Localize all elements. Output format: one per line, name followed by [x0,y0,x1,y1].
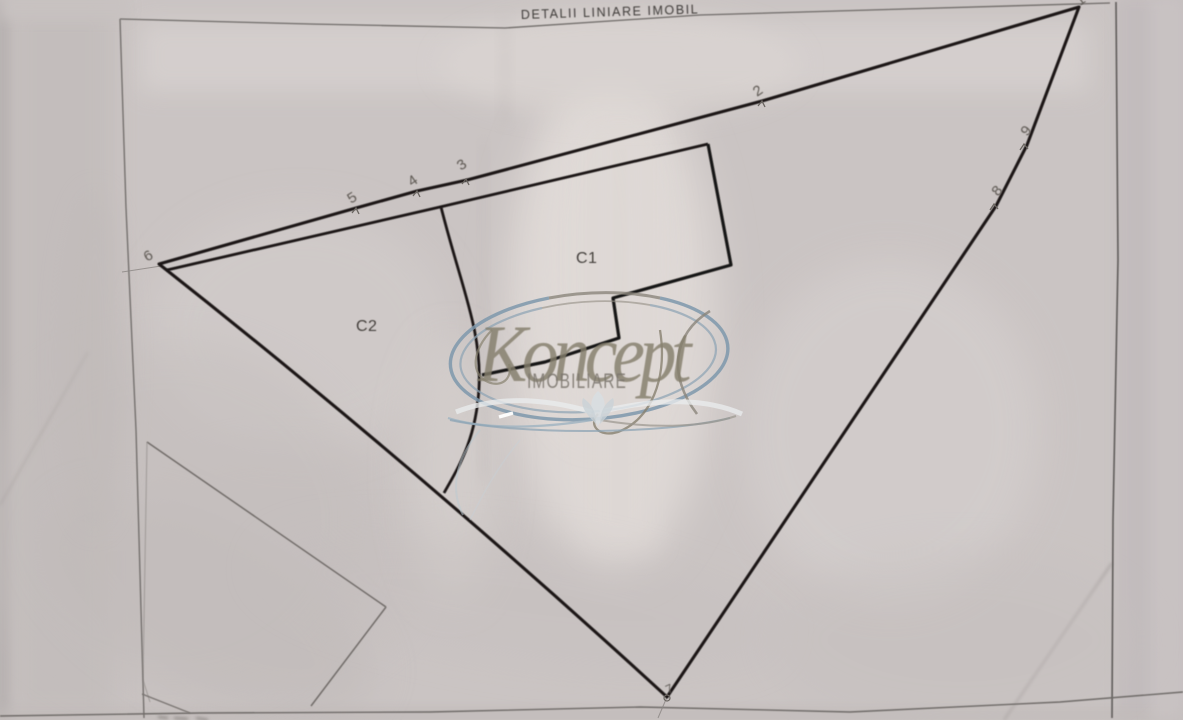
svg-text:C2: C2 [356,318,377,335]
svg-text:C1: C1 [576,250,597,267]
svg-text:IMOBILIARE: IMOBILIARE [527,369,627,393]
